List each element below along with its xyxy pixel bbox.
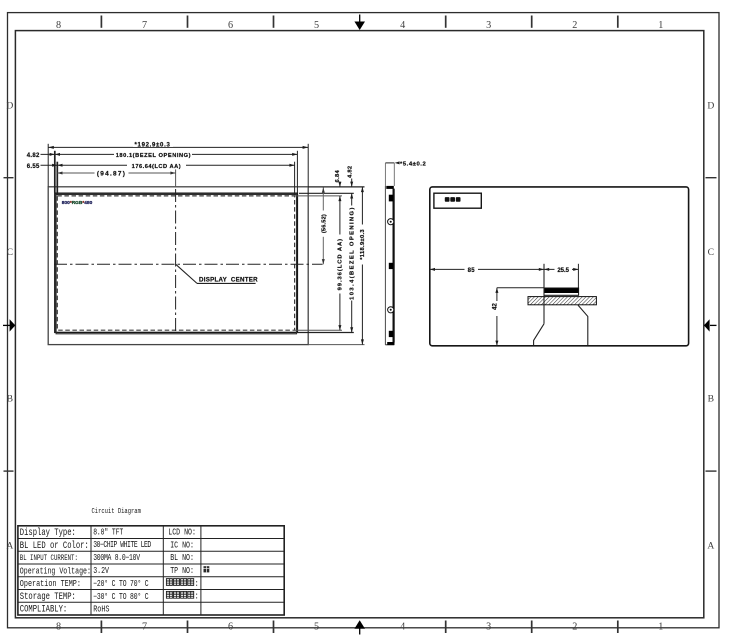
svg-text:1: 1 [658,20,663,31]
svg-text:103.4(BEZEL OPENING): 103.4(BEZEL OPENING) [349,206,355,300]
svg-text:LCD NO:: LCD NO: [168,528,196,538]
svg-text:BL LED or Color:: BL LED or Color: [20,540,89,551]
svg-text:7: 7 [142,20,147,31]
svg-text:8: 8 [56,20,61,31]
svg-text:C: C [7,247,13,258]
svg-text:(56.52): (56.52) [322,214,328,233]
svg-text:Storage TEMP:: Storage TEMP: [20,591,76,602]
svg-text:8.0″ TFT: 8.0″ TFT [93,529,123,538]
svg-text:−20° C TO 70° C: −20° C TO 70° C [93,579,149,589]
svg-text:3: 3 [486,20,491,31]
svg-text::: : [195,579,199,589]
svg-text:8: 8 [56,622,61,633]
svg-text:B: B [708,394,714,405]
svg-text:A: A [707,541,714,552]
svg-text:176.64(LCD AA): 176.64(LCD AA) [132,164,181,170]
svg-text:C: C [708,247,714,258]
svg-text:−30° C TO 80° C: −30° C TO 80° C [93,592,149,602]
svg-text:IC NO:: IC NO: [170,541,194,551]
svg-text:300MA 8.0−10V: 300MA 8.0−10V [93,554,140,563]
svg-text:*118.9±0.3: *118.9±0.3 [360,229,366,260]
svg-text:6: 6 [228,20,233,31]
svg-text:RoHS: RoHS [93,605,109,615]
svg-text:*5.4±0.2: *5.4±0.2 [400,161,426,167]
svg-text:Operation TEMP:: Operation TEMP: [20,578,81,589]
svg-text:42: 42 [492,303,499,310]
svg-text:2: 2 [572,20,577,31]
svg-text:COMPLIABLY:: COMPLIABLY: [20,604,67,615]
svg-text:4.82: 4.82 [27,153,40,159]
svg-text:A: A [6,541,13,552]
svg-text:4: 4 [400,622,405,633]
svg-text:Display Type:: Display Type: [20,527,76,538]
svg-text:3: 3 [486,622,491,633]
svg-text:30−CHIP WHITE LED: 30−CHIP WHITE LED [93,541,151,550]
svg-text:7: 7 [142,622,147,633]
svg-text:85: 85 [468,268,476,274]
svg-text:TP NO:: TP NO: [170,566,194,576]
svg-text:BL NO:: BL NO: [170,553,194,563]
svg-text:(94.87): (94.87) [97,171,126,178]
svg-text:Circuit Diagram: Circuit Diagram [92,506,141,515]
svg-text:DISPLAY CENTER: DISPLAY CENTER [199,276,258,283]
svg-text:99.36(LCD AA): 99.36(LCD AA) [338,238,344,290]
svg-text:D: D [707,101,714,112]
svg-text::: : [195,592,199,602]
svg-text:Operating Voltage:: Operating Voltage: [20,567,91,577]
svg-text:6.84: 6.84 [335,169,341,182]
svg-text:4.82: 4.82 [347,166,353,178]
svg-text:800*RGB*480: 800*RGB*480 [62,200,93,206]
svg-text:6.55: 6.55 [27,164,40,170]
svg-text:*192.9±0.3: *192.9±0.3 [135,142,171,148]
svg-text:1: 1 [658,622,663,633]
svg-text:3.2V: 3.2V [93,566,109,576]
svg-text:B: B [7,394,13,405]
svg-text:5: 5 [314,20,319,31]
svg-text:2: 2 [572,622,577,633]
svg-text:6: 6 [228,622,233,633]
svg-text:4: 4 [400,20,405,31]
svg-text:BL INPUT CURRENT:: BL INPUT CURRENT: [20,554,78,563]
svg-text:25.5: 25.5 [557,268,569,274]
svg-text:5: 5 [314,622,319,633]
svg-text:180.1(BEZEL OPENING): 180.1(BEZEL OPENING) [116,153,191,159]
svg-text:D: D [6,101,13,112]
